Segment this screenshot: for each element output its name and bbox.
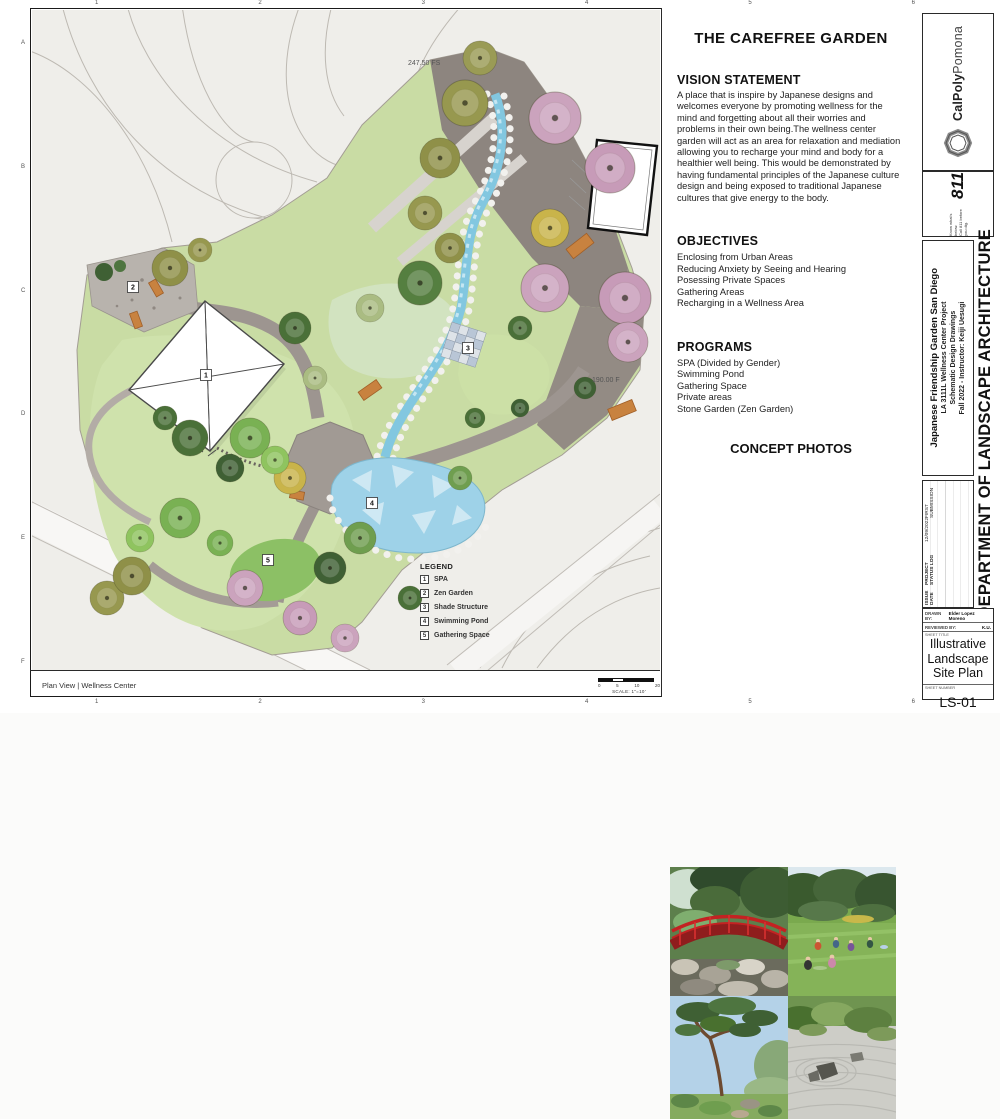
calpoly-logo-box: CalPolyPomona <box>922 13 994 171</box>
plan-footer: Plan View | Wellness Center 051020 SCALE… <box>30 670 660 697</box>
project-title: THE CAREFREE GARDEN <box>662 30 920 47</box>
vision-heading: VISION STATEMENT <box>677 73 905 87</box>
concept-photos-heading: CONCEPT PHOTOS <box>662 441 920 456</box>
call-811-box: Know what's below. Call 811 before you d… <box>922 171 994 237</box>
concept-photo-zen <box>788 996 896 1119</box>
plan-view-label: Plan View | Wellness Center <box>42 681 136 690</box>
marker-5: 5 <box>266 558 270 565</box>
legend-key: 5 <box>420 631 429 640</box>
legend-label: Zen Garden <box>434 590 473 597</box>
concept-photo-meditation <box>788 867 896 996</box>
project-info-line: Fall 2022 - Instructor: Keiji Uesugi <box>958 268 967 448</box>
concept-photo-grid <box>670 867 896 1119</box>
legend-key: 4 <box>420 617 429 626</box>
marker-3: 3 <box>466 346 470 353</box>
concept-photo-pine <box>670 996 788 1119</box>
sheet-title: Illustrative Landscape Site Plan <box>923 637 993 685</box>
site-plan-drawing: 247.50 FS 190.00 F 1 2 3 4 5 <box>32 10 660 670</box>
project-info-box: Japanese Friendship Garden San Diego LA … <box>922 240 974 476</box>
log-row-date: 12/09/2022 <box>925 518 935 542</box>
legend-label: Gathering Space <box>434 632 490 639</box>
dig-811-logo: 811 <box>948 172 968 199</box>
objective-item: Enclosing from Urban Areas <box>677 252 905 264</box>
scale-note: SCALE: 1"=10' <box>598 689 660 694</box>
site-plan: 247.50 FS 190.00 F 1 2 3 4 5 LEGEND 1 SP… <box>32 10 660 670</box>
objective-item: Recharging in a Wellness Area <box>677 298 905 310</box>
marker-4: 4 <box>370 501 374 508</box>
program-item: Gathering Space <box>677 381 905 393</box>
reviewed-by-value: K.U. <box>982 625 991 630</box>
legend-key: 2 <box>420 589 429 598</box>
legend-label: Swimming Pond <box>434 618 488 625</box>
log-col-date: ISSUE DATE <box>925 585 935 605</box>
legend: LEGEND 1 SPA 2 Zen Garden 3 Shade Struct… <box>420 562 540 645</box>
objective-item: Posessing Private Spaces <box>677 275 905 287</box>
grid-numbers-bottom: 123456 <box>95 699 915 705</box>
drawn-by-label: DRAWN BY: <box>925 611 949 621</box>
calpoly-octagon-icon <box>943 128 973 158</box>
legend-title: LEGEND <box>420 562 540 571</box>
elevation-label-top: 247.50 FS <box>408 60 441 67</box>
marker-2: 2 <box>131 285 135 292</box>
reviewed-by-label: REVIEWED BY: <box>925 625 956 630</box>
drawn-by-value: Elder Lopez Moreno <box>949 611 991 621</box>
elevation-label-right: 190.00 F <box>592 377 620 384</box>
objective-item: Reducing Anxiety by Seeing and Hearing <box>677 264 905 276</box>
objectives-list: Enclosing from Urban AreasReducing Anxie… <box>677 252 905 310</box>
program-item: SPA (Divided by Gender) <box>677 358 905 370</box>
legend-label: Shade Structure <box>434 604 488 611</box>
objectives-heading: OBJECTIVES <box>677 234 905 248</box>
program-item: Swimming Pond <box>677 369 905 381</box>
legend-item: 1 SPA <box>420 575 540 584</box>
dig-tagline: Know what's below. Call 811 before you d… <box>948 202 968 236</box>
objective-item: Gathering Areas <box>677 287 905 299</box>
calpoly-wordmark: CalPolyPomona <box>951 26 965 121</box>
marker-1: 1 <box>204 373 208 380</box>
grid-numbers-top: 123456 <box>95 0 915 6</box>
grid-letters-left: ABCDEF <box>21 40 25 665</box>
legend-item: 5 Gathering Space <box>420 631 540 640</box>
project-status-log: ISSUE DATE PROJECT STATUS LOG 12/09/2022… <box>922 480 974 608</box>
project-name: Japanese Friendship Garden San Diego <box>929 268 940 448</box>
info-panel: THE CAREFREE GARDEN VISION STATEMENT A p… <box>662 8 920 697</box>
log-row-status: FIRST SUBMISSION <box>925 483 935 518</box>
drawing-sheet: ABCDEF ABCDEF 123456 123456 <box>0 0 1000 713</box>
programs-heading: PROGRAMS <box>677 340 905 354</box>
programs-list: SPA (Divided by Gender)Swimming PondGath… <box>677 358 905 416</box>
program-item: Stone Garden (Zen Garden) <box>677 404 905 416</box>
legend-item: 3 Shade Structure <box>420 603 540 612</box>
legend-item: 2 Zen Garden <box>420 589 540 598</box>
title-block: CalPolyPomona Know what's below. Call 81… <box>920 8 996 697</box>
legend-item: 4 Swimming Pond <box>420 617 540 626</box>
legend-key: 1 <box>420 575 429 584</box>
log-col-status: PROJECT STATUS LOG <box>925 546 935 585</box>
department-title-wrap: DEPARTMENT OF LANDSCAPE ARCHITECTURE <box>974 240 996 608</box>
department-title: DEPARTMENT OF LANDSCAPE ARCHITECTURE <box>976 229 995 618</box>
legend-label: SPA <box>434 576 448 583</box>
sheet-info-box: DRAWN BY: Elder Lopez Moreno REVIEWED BY… <box>922 608 994 700</box>
vision-text: A place that is inspire by Japanese desi… <box>677 90 905 204</box>
legend-key: 3 <box>420 603 429 612</box>
program-item: Private areas <box>677 392 905 404</box>
project-info-line: LA 3111L Wellness Center Project <box>940 268 949 448</box>
concept-photo-bridge <box>670 867 788 996</box>
sheet-number: LS-01 <box>923 690 993 710</box>
scale-bar: 051020 SCALE: 1"=10' <box>598 678 660 694</box>
project-info-line: Schematic Design Drawings <box>949 268 958 448</box>
